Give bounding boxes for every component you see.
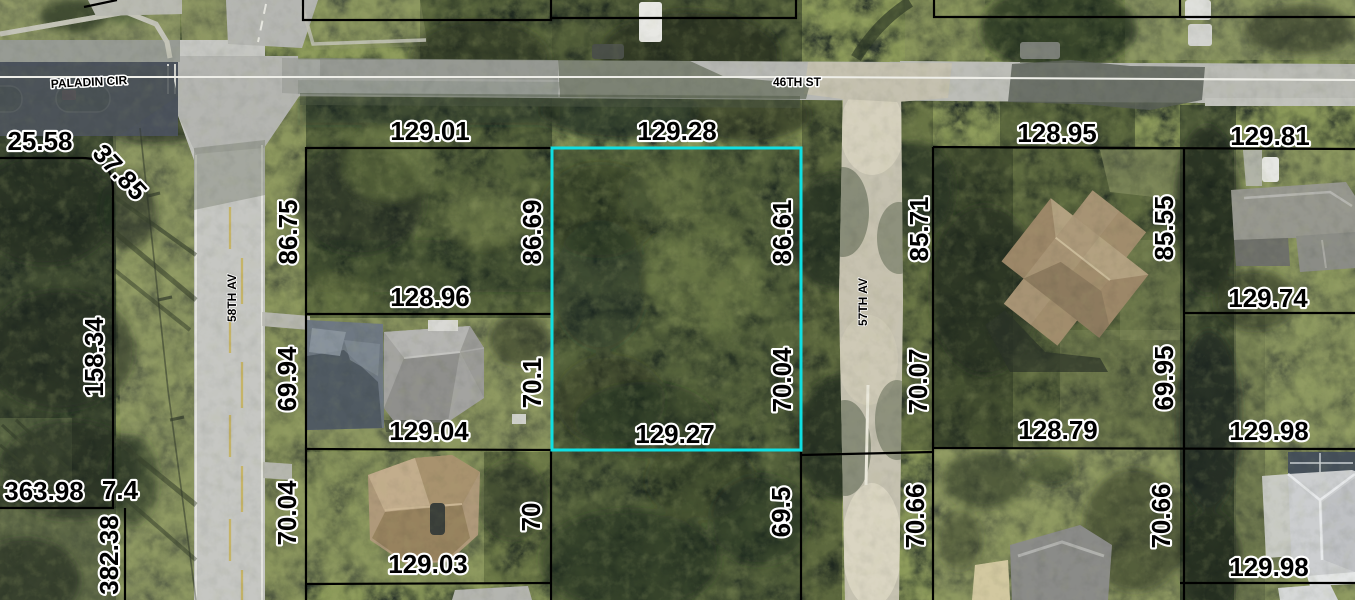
svg-text:70.66: 70.66 bbox=[1146, 483, 1176, 548]
svg-text:69.95: 69.95 bbox=[1149, 345, 1179, 410]
svg-text:363.98: 363.98 bbox=[4, 476, 84, 506]
svg-text:129.98: 129.98 bbox=[1229, 416, 1309, 446]
svg-text:129.04: 129.04 bbox=[389, 416, 469, 446]
svg-text:128.96: 128.96 bbox=[390, 282, 470, 312]
svg-text:70: 70 bbox=[516, 503, 546, 532]
svg-text:129.27: 129.27 bbox=[635, 419, 715, 449]
svg-text:69.5: 69.5 bbox=[766, 487, 796, 538]
svg-text:25.58: 25.58 bbox=[7, 126, 72, 156]
svg-text:58TH AV: 58TH AV bbox=[225, 274, 239, 322]
svg-text:129.28: 129.28 bbox=[637, 116, 717, 146]
svg-text:129.98: 129.98 bbox=[1229, 552, 1309, 582]
svg-text:128.95: 128.95 bbox=[1017, 118, 1097, 148]
svg-text:382.38: 382.38 bbox=[94, 515, 124, 595]
svg-text:70.04: 70.04 bbox=[272, 480, 302, 546]
svg-text:70.66: 70.66 bbox=[900, 483, 930, 548]
svg-text:57TH AV: 57TH AV bbox=[856, 278, 870, 326]
svg-text:86.75: 86.75 bbox=[273, 199, 303, 264]
svg-text:128.79: 128.79 bbox=[1018, 415, 1098, 445]
svg-text:69.94: 69.94 bbox=[272, 346, 302, 412]
svg-text:7.4: 7.4 bbox=[102, 475, 139, 505]
svg-text:70.1: 70.1 bbox=[517, 358, 547, 409]
svg-text:70.07: 70.07 bbox=[903, 348, 933, 413]
svg-text:129.03: 129.03 bbox=[388, 549, 468, 579]
svg-text:46TH ST: 46TH ST bbox=[773, 75, 822, 89]
svg-text:129.01: 129.01 bbox=[390, 116, 470, 146]
svg-text:85.55: 85.55 bbox=[1149, 195, 1179, 260]
svg-text:70.04: 70.04 bbox=[767, 347, 797, 413]
svg-text:129.74: 129.74 bbox=[1228, 283, 1308, 313]
svg-text:85.71: 85.71 bbox=[904, 196, 934, 261]
svg-text:158.34: 158.34 bbox=[79, 317, 109, 397]
svg-text:129.81: 129.81 bbox=[1230, 121, 1310, 151]
svg-text:86.69: 86.69 bbox=[517, 199, 547, 264]
svg-text:86.61: 86.61 bbox=[767, 199, 797, 264]
